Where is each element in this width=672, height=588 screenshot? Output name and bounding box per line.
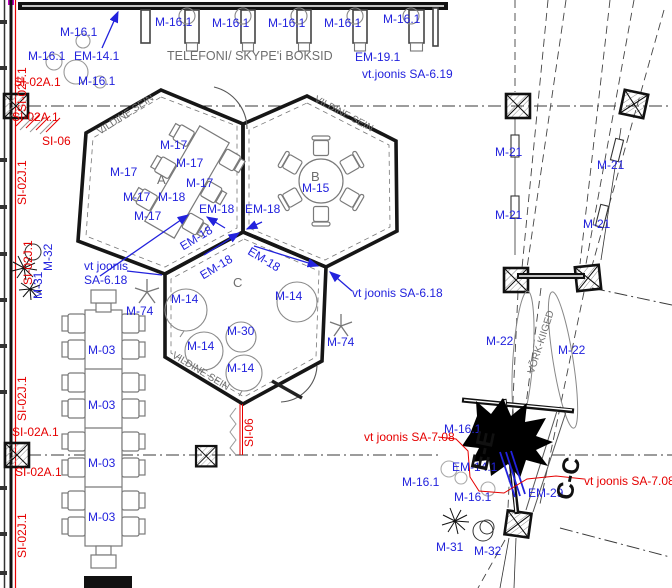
label-m-14: M-14	[171, 293, 198, 305]
label-m-16-1: M-16.1	[454, 491, 491, 503]
label-m-31: M-31	[436, 541, 463, 553]
label-m-16-1: M-16.1	[268, 17, 305, 29]
label-vt-joonis-sa-6-19: vt.joonis SA-6.19	[362, 68, 453, 80]
label-m-17: M-17	[186, 177, 213, 189]
label-si-02a-1: SI-02A.1	[15, 466, 62, 478]
label-m-31: M-31	[32, 272, 44, 299]
label-si-06: SI-06	[42, 135, 71, 147]
label-si-02j-1: SI-02J.1	[16, 513, 28, 558]
floor-plan-canvas[interactable]: M-16.1M-16.1EM-14.1M-16.1SI-02A.1SI-02A.…	[0, 0, 672, 588]
label-c: C	[233, 276, 242, 289]
long-table-m03	[62, 290, 145, 568]
label-si-02f-1: SI-02F.1	[16, 67, 28, 112]
label-m-16-1: M-16.1	[212, 17, 249, 29]
label-em-19-1: EM-19.1	[355, 51, 400, 63]
label-m-74: M-74	[126, 305, 153, 317]
door-leaf-hex-c	[272, 381, 302, 398]
label-m-14: M-14	[187, 340, 214, 352]
label-m-03: M-03	[88, 344, 115, 356]
label-si-02a-1: SI-02A.1	[12, 426, 59, 438]
label-si-02j-1: SI-02J.1	[16, 376, 28, 421]
label-vt-joonis: vt joonis	[84, 260, 128, 272]
label-m-15: M-15	[302, 182, 329, 194]
label-vt-joonis-sa-7-08: vt joonis SA-7.08	[584, 475, 672, 487]
label-sa-6-18: SA-6.18	[84, 274, 127, 286]
label-a: A	[157, 173, 166, 186]
label-m-16-1: M-16.1	[155, 16, 192, 28]
label-m-17: M-17	[176, 157, 203, 169]
label-m-22: M-22	[558, 344, 585, 356]
label-m-16-1: M-16.1	[324, 17, 361, 29]
label-m-03: M-03	[88, 511, 115, 523]
label-m-30: M-30	[227, 325, 254, 337]
label-m-21: M-21	[583, 218, 610, 230]
label-m-03: M-03	[88, 399, 115, 411]
label-m-16-1: M-16.1	[60, 26, 97, 38]
hexagon-c	[165, 232, 326, 404]
label-m-21: M-21	[495, 146, 522, 158]
plant-star-right	[330, 314, 352, 336]
label-em-14-1: EM-14.1	[74, 50, 119, 62]
label-si-06: SI-06	[243, 418, 255, 447]
label-m-17: M-17	[160, 139, 187, 151]
label-m-16-1: M-16.1	[383, 13, 420, 25]
label-m-74: M-74	[327, 336, 354, 348]
plant-star-left	[135, 279, 159, 303]
label-m-17: M-17	[134, 210, 161, 222]
label-m-18: M-18	[158, 191, 185, 203]
label-m-14: M-14	[227, 362, 254, 374]
label-m-21: M-21	[597, 159, 624, 171]
label-m-22: M-22	[486, 335, 513, 347]
bottom-wall-stub	[84, 576, 132, 588]
label-m-03: M-03	[88, 457, 115, 469]
label-telefoni-skype-i-boksid: TELEFONI/ SKYPE'i BOKSID	[167, 50, 333, 63]
label-m-16-1: M-16.1	[28, 50, 65, 62]
label-si-02j-1: SI-02J.1	[16, 160, 28, 205]
label-m-32: M-32	[42, 244, 54, 271]
si06-marker-line	[230, 404, 243, 455]
label-vt-joonis-sa-7-08: vt joonis SA-7.08	[364, 431, 455, 443]
label-m-32: M-32	[474, 545, 501, 557]
top-wall	[8, 0, 448, 10]
plant-bottom-right	[442, 508, 494, 541]
label-m-21: M-21	[495, 209, 522, 221]
suspension-rods-m21	[511, 135, 624, 228]
label-m-16-1: M-16.1	[402, 476, 439, 488]
label-em-18: EM-18	[245, 203, 280, 215]
door-swings	[214, 87, 317, 402]
label-si-02a-1: SI-02A.1	[12, 111, 59, 123]
label-m-14: M-14	[275, 290, 302, 302]
label-m-17: M-17	[123, 191, 150, 203]
label-m-17: M-17	[110, 166, 137, 178]
label-vt-joonis-sa-6-18: vt joonis SA-6.18	[352, 287, 443, 299]
label-m-16-1: M-16.1	[78, 75, 115, 87]
label-em-18: EM-18	[199, 203, 234, 215]
